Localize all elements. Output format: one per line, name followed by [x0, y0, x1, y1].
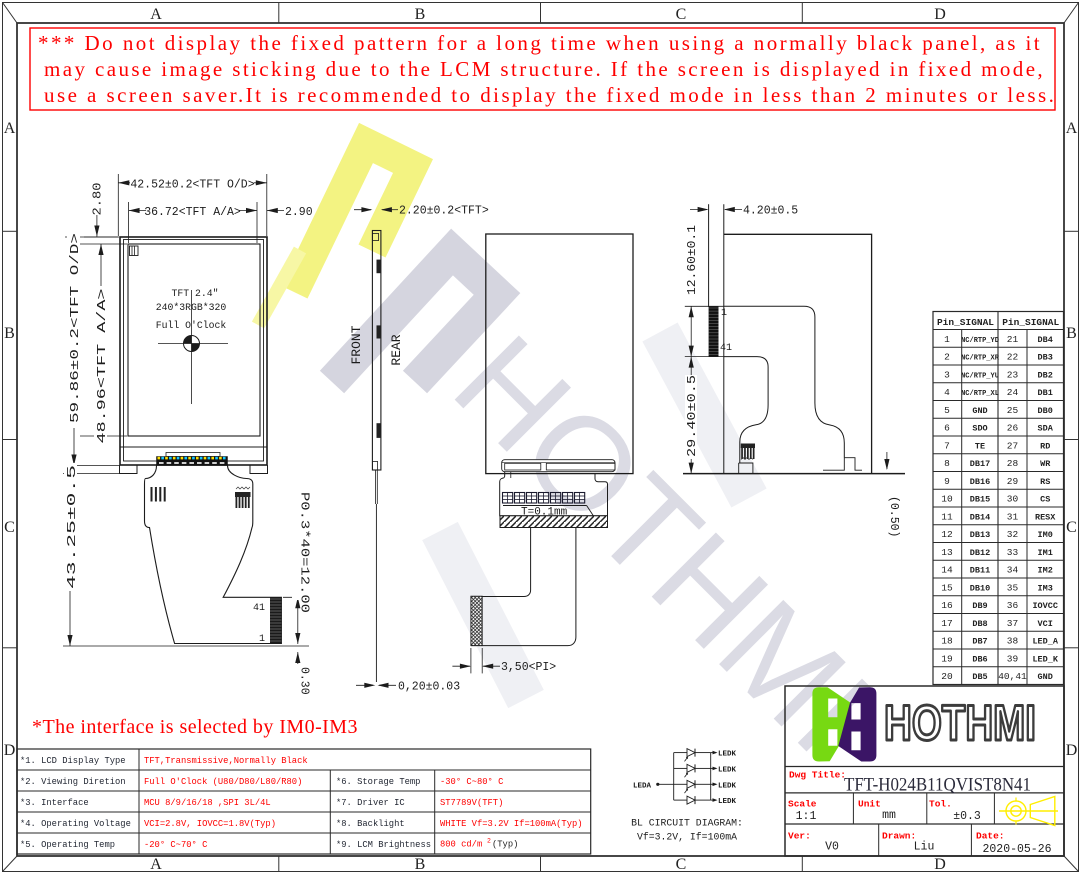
svg-text:Ver:: Ver: — [788, 831, 811, 842]
svg-text:TFT 2.4″: TFT 2.4″ — [171, 288, 218, 299]
svg-text:41: 41 — [253, 603, 265, 614]
svg-text:11: 11 — [941, 511, 953, 522]
svg-text:*5. Operating Temp: *5. Operating Temp — [20, 840, 115, 850]
svg-text:Dwg Title:: Dwg Title: — [789, 770, 846, 781]
svg-text:DB9: DB9 — [972, 601, 987, 611]
svg-text:29.40±0.5: 29.40±0.5 — [686, 375, 699, 457]
svg-text:DB16: DB16 — [970, 477, 990, 487]
svg-text:LEDK: LEDK — [718, 798, 737, 806]
svg-text:A: A — [150, 6, 162, 23]
svg-text:HOTHMI: HOTHMI — [884, 695, 1036, 751]
svg-text:DB11: DB11 — [970, 566, 990, 576]
svg-text:10: 10 — [941, 494, 953, 505]
svg-text:B: B — [4, 325, 15, 342]
svg-text:A: A — [1066, 120, 1078, 137]
svg-text:NC/RTP_XR: NC/RTP_XR — [961, 355, 1000, 363]
svg-text:Unit: Unit — [858, 799, 881, 810]
svg-text:2.80: 2.80 — [92, 182, 105, 215]
svg-text:V0: V0 — [825, 841, 839, 854]
svg-text:CS: CS — [1040, 495, 1050, 505]
svg-text:Drawn:: Drawn: — [882, 831, 916, 842]
svg-text:3,50<PI>: 3,50<PI> — [501, 661, 556, 674]
svg-text:BL CIRCUIT DIAGRAM:: BL CIRCUIT DIAGRAM: — [631, 818, 743, 829]
svg-text:37: 37 — [1007, 618, 1018, 629]
svg-text:15: 15 — [941, 582, 953, 593]
svg-text:0.30: 0.30 — [298, 667, 311, 695]
svg-text:D: D — [1066, 742, 1078, 759]
svg-text:DB8: DB8 — [972, 619, 987, 629]
svg-text:TE: TE — [975, 441, 985, 451]
svg-text:Scale: Scale — [788, 799, 817, 810]
svg-text:(0.50): (0.50) — [887, 496, 900, 537]
svg-text:TFT-H024B11QVIST8N41: TFT-H024B11QVIST8N41 — [844, 775, 1031, 796]
svg-text:Liu: Liu — [914, 841, 935, 854]
svg-text:3: 3 — [944, 369, 950, 380]
svg-text:IM1: IM1 — [1038, 548, 1053, 558]
svg-text:5: 5 — [944, 405, 950, 416]
svg-text:Pin_SIGNAL: Pin_SIGNAL — [937, 317, 994, 328]
svg-text:1: 1 — [259, 634, 265, 645]
svg-text:D: D — [4, 742, 16, 759]
svg-text:-30° C~80° C: -30° C~80° C — [440, 777, 503, 787]
svg-text:2: 2 — [944, 352, 950, 363]
svg-text:Full O'Clock: Full O'Clock — [156, 320, 227, 331]
svg-text:LEDK: LEDK — [718, 751, 737, 759]
svg-text:±0.3: ±0.3 — [953, 810, 981, 823]
svg-text:1: 1 — [944, 334, 950, 345]
svg-text:*2. Viewing Diretion: *2. Viewing Diretion — [20, 777, 126, 787]
svg-text:*7. Driver IC: *7. Driver IC — [336, 798, 405, 808]
svg-text:Tol.: Tol. — [929, 799, 952, 810]
svg-text:-20° C~70° C: -20° C~70° C — [144, 840, 207, 850]
svg-text:IM2: IM2 — [1038, 566, 1053, 576]
svg-text:2.90: 2.90 — [285, 206, 313, 219]
svg-text:GND: GND — [972, 406, 987, 416]
svg-text:LED_A: LED_A — [1032, 637, 1058, 647]
svg-text:DB3: DB3 — [1038, 353, 1053, 363]
svg-text:B: B — [415, 6, 426, 23]
svg-text:0,20±0.03: 0,20±0.03 — [398, 680, 460, 693]
svg-text:36.72<TFT A/A>: 36.72<TFT A/A> — [144, 206, 241, 219]
svg-text:LED_K: LED_K — [1032, 654, 1058, 664]
svg-text:RESX: RESX — [1035, 512, 1056, 522]
svg-text:NC/RTP_YD: NC/RTP_YD — [961, 337, 999, 345]
svg-text:9: 9 — [944, 476, 950, 487]
svg-text:35: 35 — [1007, 582, 1019, 593]
svg-text:WHITE Vf=3.2V If=100mA(Typ): WHITE Vf=3.2V If=100mA(Typ) — [440, 819, 583, 829]
svg-text:Date:: Date: — [976, 831, 1005, 842]
svg-text:13: 13 — [941, 547, 953, 558]
svg-text:DB14: DB14 — [970, 512, 990, 522]
svg-text:C: C — [4, 519, 15, 536]
svg-text:29: 29 — [1007, 476, 1019, 487]
svg-text:28: 28 — [1007, 458, 1019, 469]
svg-text:17: 17 — [941, 618, 952, 629]
svg-text:DB6: DB6 — [972, 654, 987, 664]
svg-text:41: 41 — [720, 343, 732, 354]
svg-text:27: 27 — [1007, 440, 1018, 451]
svg-text:6: 6 — [944, 423, 950, 434]
svg-text:NC/RTP_YU: NC/RTP_YU — [961, 372, 999, 380]
svg-text:DB15: DB15 — [970, 495, 990, 505]
svg-text:*4. Operating Voltage: *4. Operating Voltage — [20, 819, 131, 829]
svg-text:LEDK: LEDK — [718, 766, 737, 774]
svg-text:RS: RS — [1040, 477, 1050, 487]
svg-text:240*3RGB*320: 240*3RGB*320 — [156, 302, 227, 313]
svg-text:30: 30 — [1007, 494, 1019, 505]
svg-text:*1. LCD Display Type: *1. LCD Display Type — [20, 756, 126, 766]
svg-text:Vf=3.2V, If=100mA: Vf=3.2V, If=100mA — [637, 832, 737, 843]
svg-text:(Typ): (Typ) — [492, 840, 518, 850]
svg-text:use a screen saver.It is recom: use a screen saver.It is recommended to … — [44, 83, 1056, 107]
svg-text:36: 36 — [1007, 600, 1019, 611]
svg-text:DB17: DB17 — [970, 459, 990, 469]
svg-text:*9. LCM Brightness: *9. LCM Brightness — [336, 840, 431, 850]
svg-text:DB5: DB5 — [972, 672, 987, 682]
svg-text:may cause image sticking due t: may cause image sticking due to the LCM … — [44, 57, 1045, 81]
svg-text:IM0: IM0 — [1038, 530, 1053, 540]
svg-text:IOVCC: IOVCC — [1032, 601, 1058, 611]
svg-text:34: 34 — [1007, 565, 1019, 576]
svg-text:WR: WR — [1040, 459, 1051, 469]
svg-text:24: 24 — [1007, 387, 1019, 398]
svg-text:VCI: VCI — [1038, 619, 1053, 629]
svg-text:23: 23 — [1007, 369, 1019, 380]
svg-text:38: 38 — [1007, 636, 1019, 647]
svg-text:22: 22 — [1007, 352, 1019, 363]
svg-text:C: C — [1066, 519, 1077, 536]
svg-text:SDA: SDA — [1038, 424, 1054, 434]
svg-text:P0.3*40=12.00: P0.3*40=12.00 — [298, 492, 311, 613]
svg-text:B: B — [415, 856, 426, 873]
svg-text:*6. Storage Temp: *6. Storage Temp — [336, 777, 420, 787]
svg-text:21: 21 — [1007, 334, 1019, 345]
svg-text:FRONT: FRONT — [349, 325, 364, 364]
svg-text:1: 1 — [721, 308, 727, 319]
svg-text:LEDA: LEDA — [633, 782, 652, 790]
svg-text:REAR: REAR — [389, 334, 404, 365]
svg-text:32: 32 — [1007, 529, 1019, 540]
svg-text:31: 31 — [1007, 511, 1019, 522]
svg-text:2.20±0.2<TFT>: 2.20±0.2<TFT> — [399, 205, 489, 218]
svg-text:Pin_SIGNAL: Pin_SIGNAL — [1002, 317, 1059, 328]
svg-text:DB10: DB10 — [970, 583, 990, 593]
svg-text:*** Do not display the fixed p: *** Do not display the fixed pattern for… — [38, 31, 1042, 55]
svg-text:DB4: DB4 — [1038, 335, 1053, 345]
svg-text:mm: mm — [882, 809, 896, 822]
svg-text:1:1: 1:1 — [796, 810, 817, 823]
svg-text:4: 4 — [944, 387, 950, 398]
svg-text:26: 26 — [1007, 423, 1019, 434]
svg-text:4.20±0.5: 4.20±0.5 — [743, 205, 798, 218]
svg-text:800 cd/m: 800 cd/m — [440, 840, 482, 850]
svg-text:VCI=2.8V, IOVCC=1.8V(Typ): VCI=2.8V, IOVCC=1.8V(Typ) — [144, 819, 276, 829]
svg-text:40,41: 40,41 — [998, 671, 1027, 682]
svg-text:D: D — [934, 6, 946, 23]
svg-text:NC/RTP_XL: NC/RTP_XL — [961, 390, 999, 398]
svg-text:*8. Backlight: *8. Backlight — [336, 819, 405, 829]
svg-text:*3. Interface: *3. Interface — [20, 798, 89, 808]
svg-text:ST7789V(TFT): ST7789V(TFT) — [440, 798, 503, 808]
svg-text:LEDK: LEDK — [718, 782, 737, 790]
svg-text:C: C — [676, 856, 687, 873]
svg-text:DB0: DB0 — [1038, 406, 1053, 416]
svg-text:*The interface is selected by: *The interface is selected by IM0-IM3 — [32, 716, 358, 738]
svg-text:RD: RD — [1040, 441, 1050, 451]
svg-text:12: 12 — [941, 529, 953, 540]
svg-text:A: A — [4, 120, 16, 137]
svg-text:Full O'Clock (U80/D80/L80/R80): Full O'Clock (U80/D80/L80/R80) — [144, 777, 302, 787]
svg-text:42.52±0.2<TFT O/D>: 42.52±0.2<TFT O/D> — [130, 178, 254, 191]
svg-text:DB1: DB1 — [1038, 388, 1053, 398]
svg-text:A: A — [150, 856, 162, 873]
svg-text:12.60±0.1: 12.60±0.1 — [686, 225, 699, 295]
svg-text:B: B — [1066, 325, 1077, 342]
svg-text:DB7: DB7 — [972, 637, 987, 647]
svg-text:D: D — [934, 856, 946, 873]
svg-text:2: 2 — [487, 838, 491, 845]
svg-text:MCU 8/9/16/18 ,SPI 3L/4L: MCU 8/9/16/18 ,SPI 3L/4L — [144, 798, 271, 808]
svg-text:25: 25 — [1007, 405, 1019, 416]
svg-text:GND: GND — [1038, 672, 1053, 682]
svg-text:DB12: DB12 — [970, 548, 990, 558]
svg-text:7: 7 — [944, 440, 950, 451]
svg-text:2020-05-26: 2020-05-26 — [982, 843, 1051, 856]
svg-text:IM3: IM3 — [1038, 583, 1053, 593]
svg-text:TFT,Transmissive,Normally Blac: TFT,Transmissive,Normally Black — [144, 756, 308, 766]
svg-text:39: 39 — [1007, 653, 1019, 664]
svg-text:C: C — [676, 6, 687, 23]
svg-text:18: 18 — [941, 636, 953, 647]
svg-text:DB13: DB13 — [970, 530, 990, 540]
svg-text:43.25±0.5: 43.25±0.5 — [66, 465, 79, 589]
svg-text:8: 8 — [944, 458, 950, 469]
svg-text:48.96<TFT A/A>: 48.96<TFT A/A> — [96, 288, 109, 443]
svg-text:16: 16 — [941, 600, 953, 611]
svg-text:19: 19 — [941, 653, 953, 664]
svg-text:14: 14 — [941, 565, 953, 576]
svg-text:20: 20 — [941, 671, 953, 682]
svg-text:33: 33 — [1007, 547, 1019, 558]
svg-text:DB2: DB2 — [1038, 370, 1053, 380]
svg-text:SDO: SDO — [972, 424, 987, 434]
svg-text:59.86±0.2<TFT O/D>: 59.86±0.2<TFT O/D> — [69, 233, 82, 423]
